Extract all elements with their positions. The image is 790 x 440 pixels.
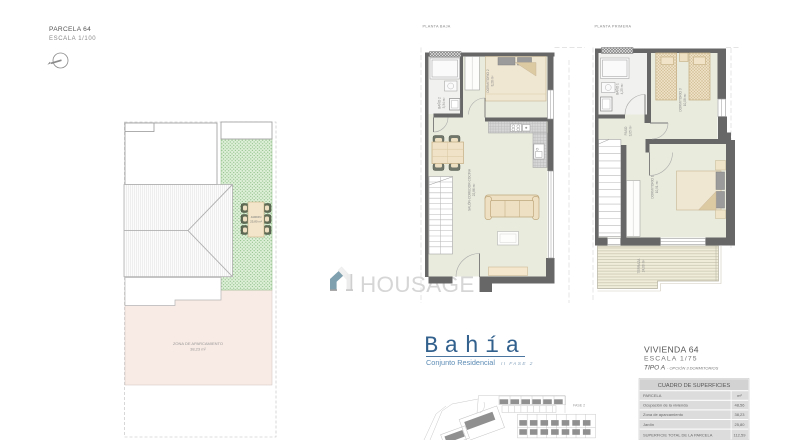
- svg-text:II FASE 2: II FASE 2: [501, 361, 534, 367]
- svg-text:Bahía: Bahía: [424, 333, 526, 359]
- svg-text:10,91 m²: 10,91 m²: [655, 181, 659, 194]
- svg-text:DORMITORIO 2: DORMITORIO 2: [486, 69, 490, 93]
- svg-text:3,05 m²: 3,05 m²: [629, 126, 633, 137]
- svg-text:22,86 m²: 22,86 m²: [472, 184, 476, 197]
- svg-text:SALÓN-COMEDOR-COCINA: SALÓN-COMEDOR-COCINA: [467, 168, 472, 211]
- svg-text:m²: m²: [737, 393, 742, 398]
- svg-text:24,00 m²: 24,00 m²: [642, 260, 646, 273]
- svg-text:Conjunto Residencial: Conjunto Residencial: [426, 358, 495, 367]
- svg-text:TIPO A: TIPO A: [644, 365, 665, 372]
- svg-text:Jardín: Jardín: [643, 422, 654, 427]
- svg-text:Zona de aparcamiento: Zona de aparcamiento: [643, 412, 684, 417]
- svg-text:25,80: 25,80: [734, 422, 745, 427]
- svg-text:- OPCIÓN 3 DORMITORIOS: - OPCIÓN 3 DORMITORIOS: [667, 366, 719, 371]
- svg-text:ESCALA 1/100: ESCALA 1/100: [49, 36, 96, 42]
- svg-text:BAÑO 2: BAÑO 2: [437, 97, 442, 109]
- svg-text:112,59: 112,59: [734, 432, 747, 437]
- svg-text:PARCELA: PARCELA: [643, 393, 662, 398]
- svg-text:25,80 m²: 25,80 m²: [250, 220, 262, 224]
- svg-text:38,23 m²: 38,23 m²: [190, 347, 206, 352]
- svg-text:ZONA DE APARCAMIENTO: ZONA DE APARCAMIENTO: [173, 341, 223, 346]
- svg-text:Ocupación de la vivienda: Ocupación de la vivienda: [643, 403, 688, 408]
- svg-text:48,56: 48,56: [734, 403, 745, 408]
- svg-text:SUPERFICIE TOTAL DE LA PARCELA: SUPERFICIE TOTAL DE LA PARCELA: [643, 432, 713, 437]
- svg-text:BAÑO 1: BAÑO 1: [615, 83, 620, 95]
- svg-text:10,08 m²: 10,08 m²: [683, 94, 687, 107]
- svg-text:4,25 m²: 4,25 m²: [620, 84, 624, 95]
- svg-text:JARDIN: JARDIN: [251, 215, 262, 219]
- svg-text:DORMITORIO 1: DORMITORIO 1: [651, 175, 655, 199]
- svg-text:ESCALA 1/75: ESCALA 1/75: [644, 356, 698, 363]
- svg-text:VIVIENDA 64: VIVIENDA 64: [644, 345, 699, 355]
- svg-text:PARCELA 64: PARCELA 64: [49, 26, 91, 33]
- svg-text:CUADRO DE SUPERFICIES: CUADRO DE SUPERFICIES: [658, 383, 731, 389]
- svg-text:PLANTA PRIMERA: PLANTA PRIMERA: [595, 24, 632, 28]
- svg-text:8,28 m²: 8,28 m²: [491, 76, 495, 87]
- svg-text:DORMITORIO 3: DORMITORIO 3: [679, 88, 683, 112]
- svg-text:PLANTA BAJA: PLANTA BAJA: [423, 24, 451, 28]
- svg-text:38,23: 38,23: [734, 412, 745, 417]
- svg-text:3,34 m²: 3,34 m²: [442, 98, 446, 109]
- svg-text:TERRAZA: TERRAZA: [637, 258, 641, 274]
- svg-text:PASO: PASO: [624, 126, 628, 135]
- svg-text:FASE 2: FASE 2: [573, 404, 585, 408]
